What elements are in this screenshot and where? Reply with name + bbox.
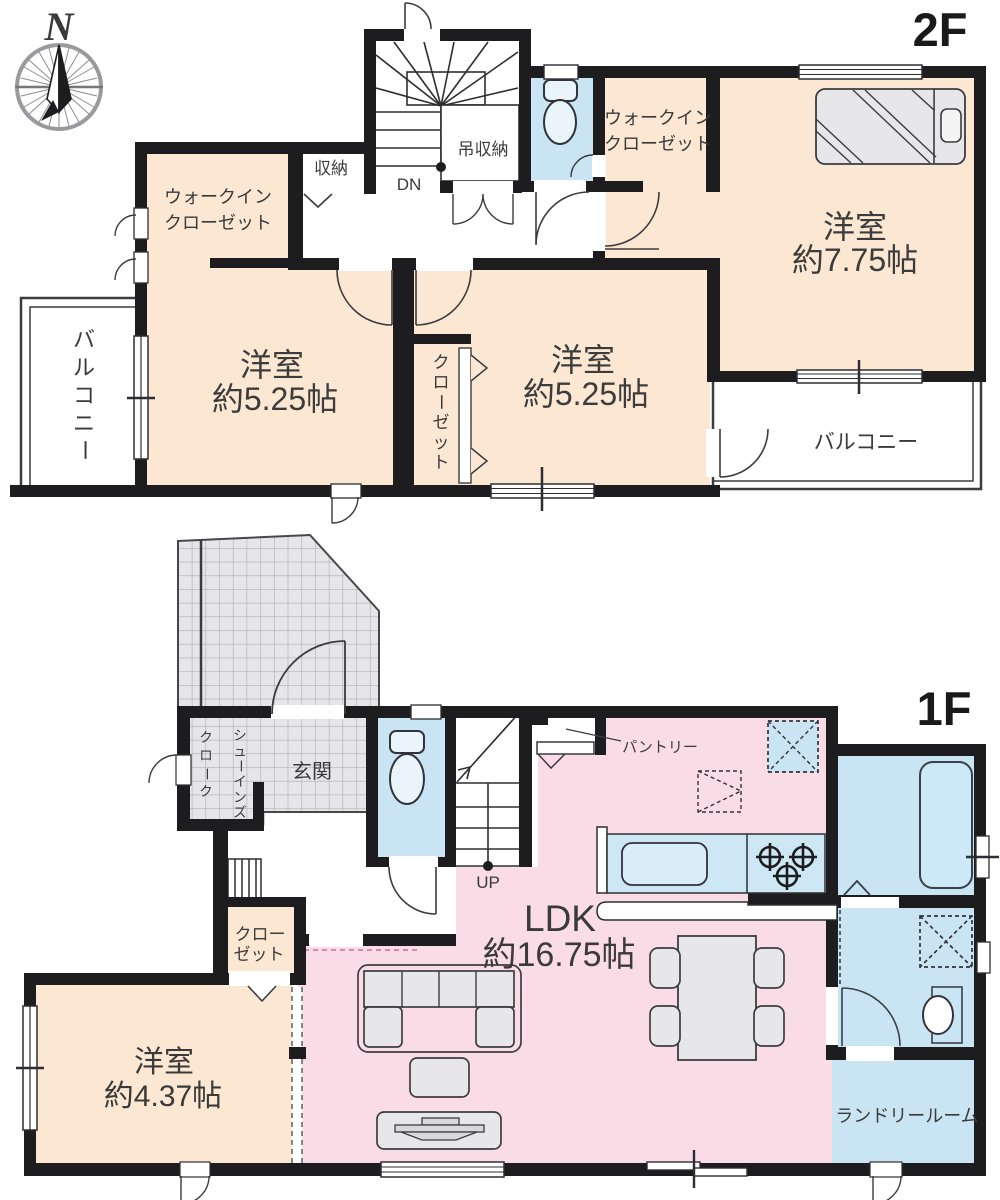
svg-text:シ: シ	[233, 728, 247, 743]
svg-text:ッ: ッ	[433, 433, 450, 452]
svg-text:洋室: 洋室	[823, 209, 887, 245]
svg-text:イ: イ	[233, 774, 247, 789]
svg-text:ン: ン	[233, 790, 247, 805]
svg-text:収納: 収納	[314, 159, 348, 178]
svg-text:ウォークイン: ウォークイン	[164, 187, 272, 207]
svg-text:ク: ク	[199, 784, 213, 799]
svg-text:ズ: ズ	[233, 805, 247, 820]
svg-text:LDK: LDK	[524, 898, 596, 939]
svg-text:ゼ: ゼ	[433, 413, 450, 432]
svg-text:約5.25帖: 約5.25帖	[523, 376, 649, 412]
svg-text:ク: ク	[199, 730, 213, 745]
svg-text:ー: ー	[72, 439, 97, 461]
svg-text:ル: ル	[73, 355, 95, 380]
svg-text:N: N	[44, 4, 76, 49]
svg-text:ゼット: ゼット	[234, 945, 285, 964]
svg-text:洋室: 洋室	[134, 1046, 194, 1079]
svg-text:クロー: クロー	[235, 925, 286, 944]
svg-text:約7.75帖: 約7.75帖	[792, 242, 918, 278]
svg-text:パントリー: パントリー	[622, 739, 698, 756]
svg-text:ロ: ロ	[433, 373, 450, 392]
svg-text:玄関: 玄関	[292, 760, 332, 783]
svg-text:ュ: ュ	[233, 744, 247, 759]
svg-text:ロ: ロ	[199, 748, 213, 763]
svg-text:ランドリールーム: ランドリールーム	[835, 1106, 978, 1126]
svg-text:吊収納: 吊収納	[458, 140, 509, 159]
svg-text:ー: ー	[199, 767, 214, 781]
svg-text:バ: バ	[73, 327, 95, 352]
svg-text:ウォークイン: ウォークイン	[604, 108, 712, 128]
svg-text:約16.75帖: 約16.75帖	[482, 936, 635, 974]
svg-text:UP: UP	[476, 873, 500, 892]
svg-text:2F: 2F	[913, 3, 968, 56]
svg-text:クローゼット: クローゼット	[604, 134, 712, 154]
svg-text:ー: ー	[431, 394, 450, 411]
svg-text:ク: ク	[433, 353, 450, 372]
svg-text:1F: 1F	[917, 682, 972, 735]
svg-text:クローゼット: クローゼット	[164, 213, 272, 233]
svg-text:ニ: ニ	[73, 411, 95, 436]
svg-text:洋室: 洋室	[240, 347, 304, 383]
svg-text:バルコニー: バルコニー	[814, 431, 919, 454]
svg-text:洋室: 洋室	[551, 342, 615, 378]
svg-text:ー: ー	[233, 759, 248, 773]
svg-text:約4.37帖: 約4.37帖	[104, 1080, 222, 1113]
svg-text:コ: コ	[73, 383, 95, 408]
svg-text:DN: DN	[397, 175, 422, 194]
svg-text:ト: ト	[433, 453, 450, 472]
svg-text:約5.25帖: 約5.25帖	[212, 381, 338, 417]
